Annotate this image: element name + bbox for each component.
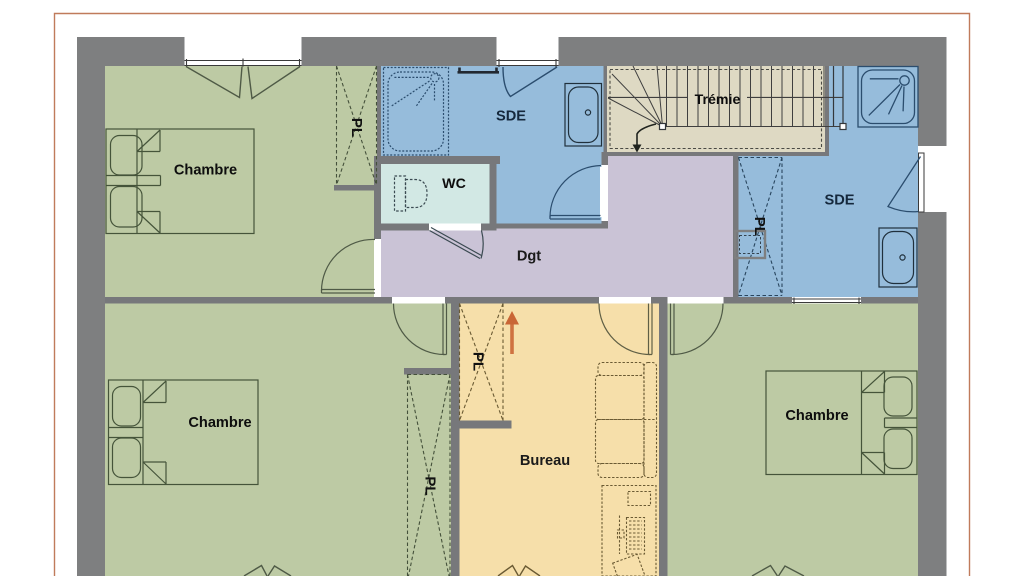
svg-text:PL: PL bbox=[422, 476, 439, 495]
svg-text:Dgt: Dgt bbox=[517, 249, 541, 265]
svg-text:PL: PL bbox=[348, 118, 365, 137]
svg-text:SDE: SDE bbox=[824, 193, 854, 209]
svg-text:Bureau: Bureau bbox=[520, 453, 570, 469]
svg-text:Chambre: Chambre bbox=[785, 408, 848, 424]
svg-text:Chambre: Chambre bbox=[174, 162, 237, 178]
svg-text:PL: PL bbox=[470, 352, 487, 371]
svg-text:Trémie: Trémie bbox=[695, 92, 741, 108]
svg-text:Chambre: Chambre bbox=[188, 415, 251, 431]
svg-text:WC: WC bbox=[442, 176, 466, 192]
svg-text:PL: PL bbox=[751, 217, 768, 236]
svg-text:SDE: SDE bbox=[496, 109, 526, 125]
